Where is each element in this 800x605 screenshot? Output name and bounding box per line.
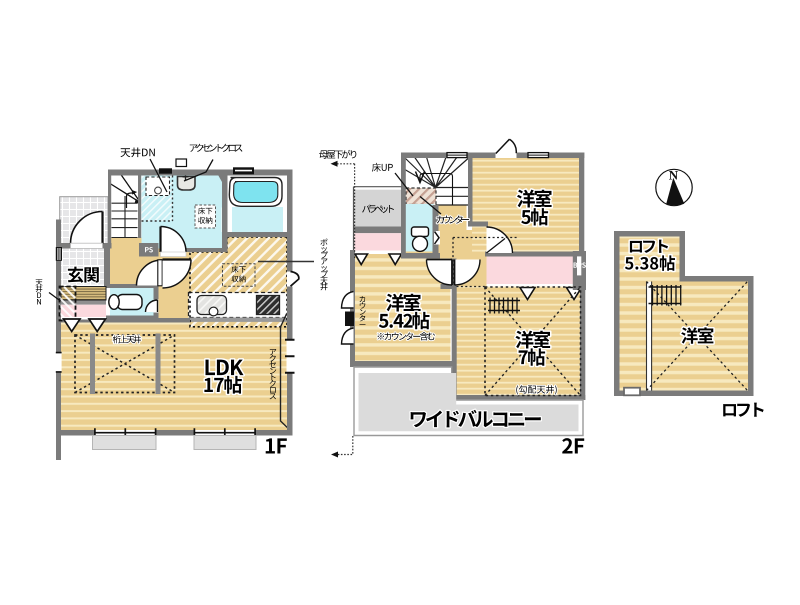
svg-text:N: N [669, 168, 679, 183]
